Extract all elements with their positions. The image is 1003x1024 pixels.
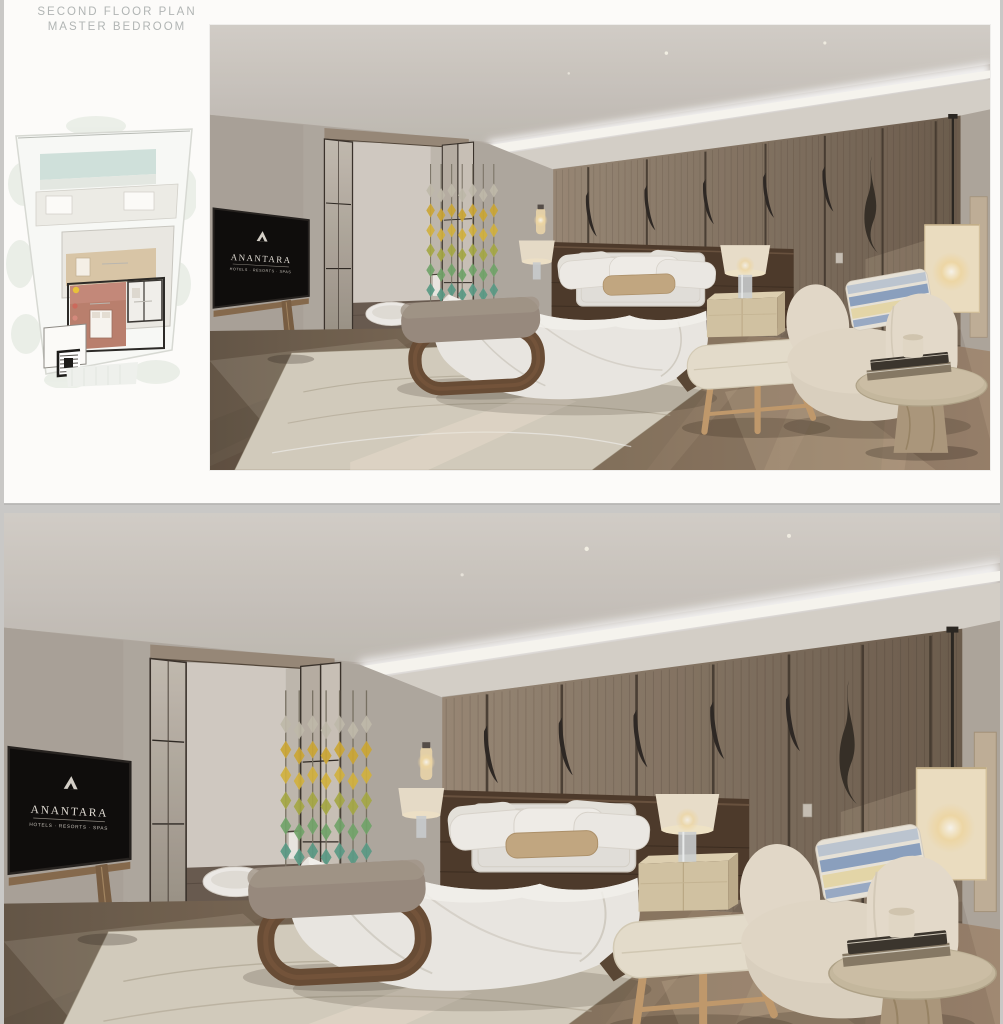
title-line-2: MASTER BEDROOM [32,20,202,35]
floor-plan-graphic [6,114,196,388]
floor-plan-thumbnail [6,114,196,388]
page-2: ANANTARAHOTELS · RESORTS · SPAS [4,513,1000,1024]
presentation-page: { "document": { "title_line1": "SECOND F… [0,0,1003,1024]
bedroom-render-scene: ANANTARAHOTELS · RESORTS · SPAS [210,25,990,470]
master-bedroom-render-small: ANANTARAHOTELS · RESORTS · SPAS [210,25,990,470]
title-line-1: SECOND FLOOR PLAN [32,5,202,20]
bedroom-render-scene: ANANTARAHOTELS · RESORTS · SPAS [4,513,1000,1024]
plan-accent-dot [73,287,79,293]
page-title: SECOND FLOOR PLAN MASTER BEDROOM [32,5,202,35]
master-bedroom-render-large: ANANTARAHOTELS · RESORTS · SPAS [4,513,1000,1024]
